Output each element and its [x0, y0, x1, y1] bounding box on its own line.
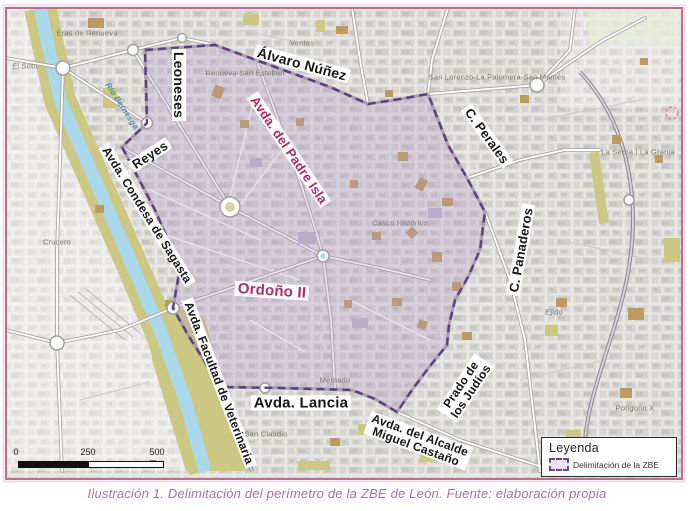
figure-zbe-leon: Álvaro NúñezLeonesesReyesAvda. del Padre…: [0, 0, 694, 511]
map-canvas: [0, 0, 694, 485]
legend-item-zbe: Delimitación de la ZBE: [549, 458, 670, 471]
legend-box: Leyenda Delimitación de la ZBE: [541, 437, 677, 477]
scale-bar-filled-half: [19, 462, 89, 467]
zbe-boundary-swatch-icon: [549, 458, 569, 471]
legend-item-label: Delimitación de la ZBE: [573, 460, 659, 470]
scale-tick-0: 0: [13, 447, 18, 457]
legend-title: Leyenda: [549, 441, 670, 455]
scale-bar-rule: [18, 461, 164, 468]
scale-tick-250: 250: [80, 447, 95, 457]
figure-caption: Ilustración 1. Delimitación del perímetr…: [0, 486, 694, 501]
